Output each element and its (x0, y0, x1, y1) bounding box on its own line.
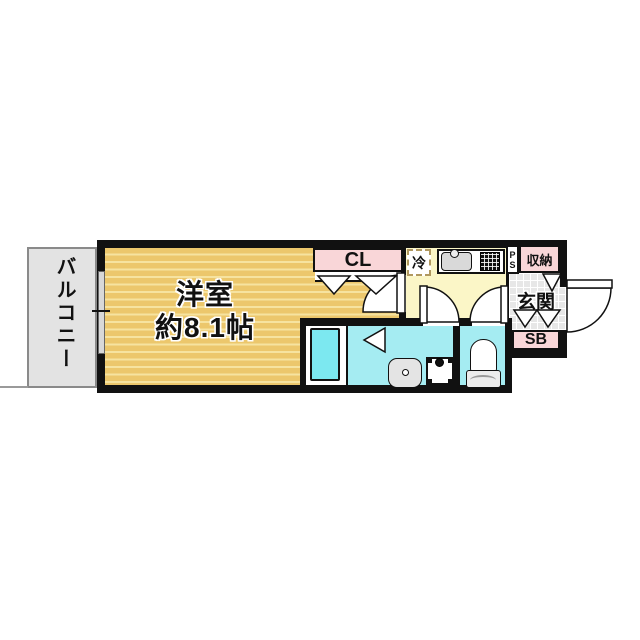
wm-corner-icon (448, 358, 453, 363)
pipe-space-box: P S (506, 245, 519, 274)
closet-label: CL (345, 249, 372, 272)
storage-label: 収納 (526, 250, 552, 269)
storage-box: 収納 (519, 245, 560, 273)
front-door-leaf (567, 280, 612, 288)
wall-washblock-top-1 (300, 318, 423, 326)
stove-icon (480, 252, 500, 271)
wm-corner-icon (427, 358, 432, 363)
washbasin-drain-icon (402, 369, 409, 376)
wall-right-bottom (505, 350, 567, 358)
balcony-label: バルコニー (50, 256, 79, 382)
wall-top (97, 240, 567, 248)
front-door-swing (567, 288, 611, 332)
wm-corner-icon (448, 379, 453, 384)
closet-box: CL (313, 248, 403, 272)
wall-bath-partition (346, 326, 348, 385)
main-room-label: 洋室 約8.1帖 (100, 278, 310, 344)
pipe-space-label-p: P (509, 250, 515, 260)
pipe-space-label-s: S (509, 260, 515, 270)
faucet-icon (450, 249, 459, 258)
shoe-box-label: SB (525, 331, 547, 349)
balcony-partition-line (0, 386, 28, 388)
bathtub (310, 328, 340, 381)
main-room-name: 洋室 (100, 278, 310, 311)
floor-plan: バルコニー CL 冷 P S 収納 (0, 0, 640, 640)
wm-corner-icon (427, 379, 432, 384)
wall-right-upper (560, 248, 567, 287)
toilet-tank-shading (470, 375, 496, 385)
entrance-label: 玄関 (509, 287, 563, 314)
wm-drain-icon (435, 358, 444, 367)
wall-washblock-top-2 (459, 318, 472, 326)
main-room-size: 約8.1帖 (100, 311, 310, 344)
refrigerator-label: 冷 (412, 253, 426, 273)
refrigerator-box: 冷 (407, 249, 431, 276)
shoe-box: SB (512, 330, 560, 350)
closet-strip (315, 272, 401, 282)
wall-washroom-toilet (453, 326, 460, 385)
toilet-bowl (470, 339, 497, 373)
